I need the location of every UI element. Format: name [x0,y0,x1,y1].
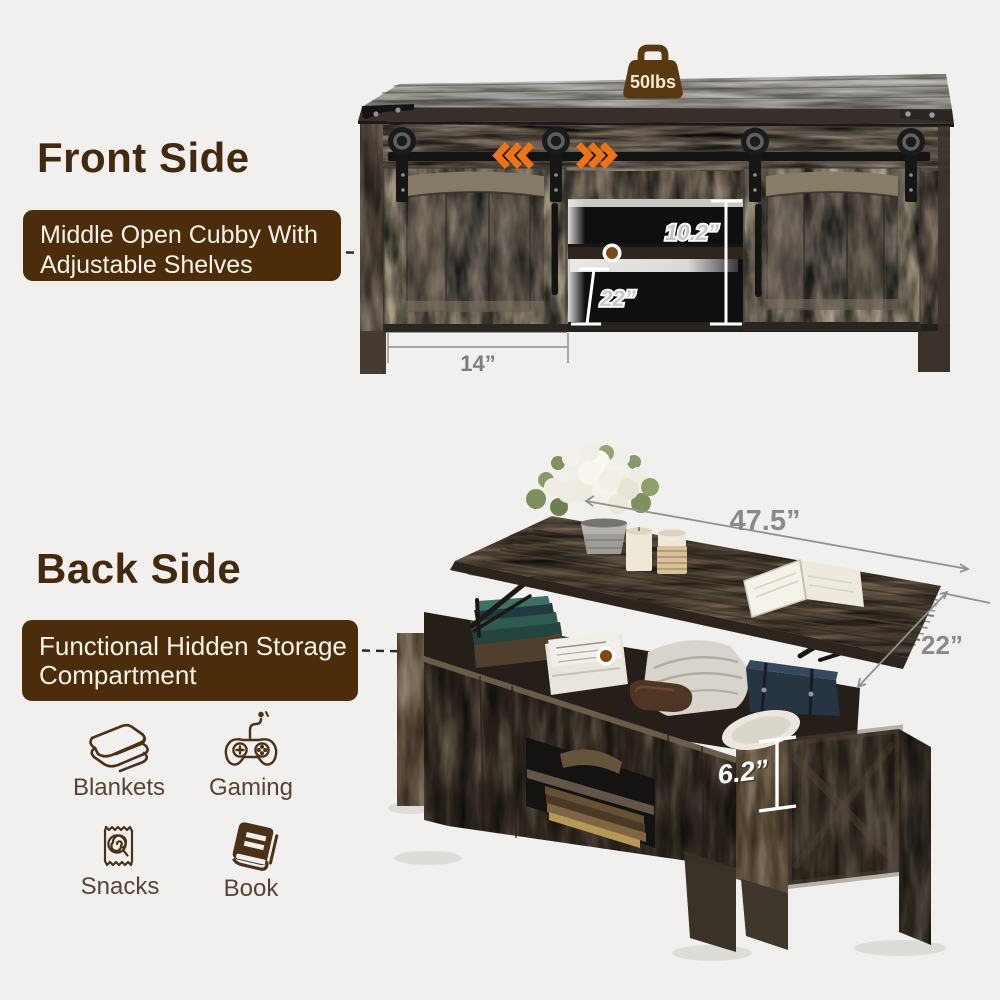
svg-text:Middle Open Cubby With: Middle Open Cubby With [40,221,318,249]
svg-text:6.2”: 6.2” [716,754,771,790]
svg-text:Book: Book [224,875,280,902]
svg-text:14”: 14” [460,351,495,376]
svg-text:Back Side: Back Side [36,545,241,592]
svg-text:Snacks: Snacks [81,873,160,900]
svg-text:Compartment: Compartment [39,660,197,690]
svg-text:Front Side: Front Side [37,134,250,181]
svg-text:47.5”: 47.5” [730,505,801,537]
svg-text:Functional Hidden Storage: Functional Hidden Storage [39,631,347,661]
svg-text:Blankets: Blankets [73,774,165,801]
svg-text:Adjustable Shelves: Adjustable Shelves [40,251,253,279]
svg-text:22”: 22” [921,630,963,660]
svg-text:10.2”: 10.2” [665,220,719,245]
svg-text:Gaming: Gaming [209,774,293,801]
svg-text:50lbs: 50lbs [630,72,676,92]
svg-text:22”: 22” [599,286,635,311]
